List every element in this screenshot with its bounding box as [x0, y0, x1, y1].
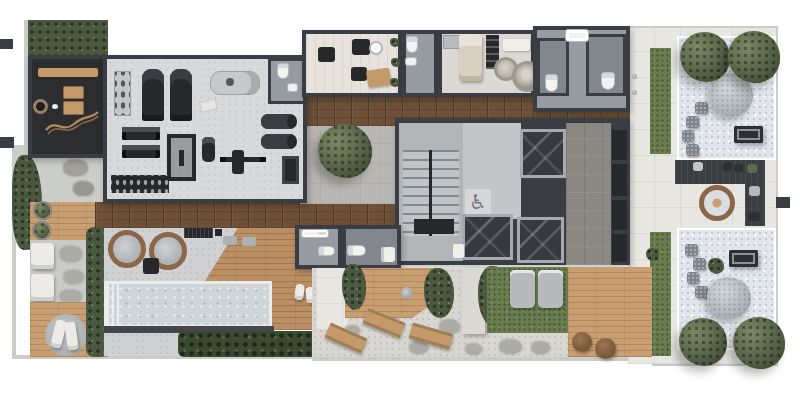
zen-tree [680, 32, 730, 82]
stepping-stone [687, 272, 699, 284]
stepping-stone [693, 258, 706, 270]
shrub [708, 258, 724, 274]
pool-steps [107, 284, 121, 325]
core-hallway [566, 123, 611, 265]
deck-mat [223, 236, 237, 245]
massage-table [459, 34, 482, 81]
potted-shrub [33, 201, 52, 220]
spa-cabinet [443, 35, 460, 49]
smith-rack [282, 156, 299, 184]
toilet [318, 246, 335, 256]
elliptical-seat [226, 78, 234, 86]
accessible-glyph: ♿ [469, 190, 487, 214]
toilet [601, 72, 615, 90]
stepping-stone [686, 144, 699, 156]
elevator-2 [462, 214, 513, 260]
shower-seat [381, 247, 395, 262]
deck-side-table [401, 287, 413, 299]
lobby-bench [453, 244, 464, 258]
weight-bench [232, 150, 244, 174]
toilet [347, 245, 366, 256]
right-gate-marker [774, 197, 790, 208]
lawn-strip-upper [650, 48, 671, 154]
toilet [277, 63, 289, 79]
accessible-icon: ♿ [465, 189, 491, 215]
zen-boulder-lower [707, 277, 751, 319]
sun-lounger-white [31, 274, 54, 301]
stepping-stone [682, 130, 694, 142]
double-sink-counter [301, 229, 329, 238]
bench-cushion [734, 164, 743, 172]
potted-plant [390, 38, 399, 47]
rowing-machine [261, 134, 297, 149]
left-wall-stub-2 [0, 137, 14, 148]
zen-tree [679, 318, 727, 366]
sun-lounger-white [31, 243, 54, 269]
barbell-rack [122, 145, 160, 158]
client-chair [351, 67, 367, 81]
driftwood-sculpture [44, 108, 100, 136]
flagstone [58, 288, 82, 303]
planting-cluster [342, 264, 366, 310]
terrace-tree [318, 124, 372, 178]
zen-bench-upper [734, 126, 763, 143]
treadmill [170, 69, 192, 121]
service-shaft [612, 130, 627, 160]
flagstone [72, 180, 94, 196]
bench-cushion [693, 162, 703, 171]
fire-pit [699, 185, 735, 221]
flagstone [62, 158, 88, 176]
toilet [545, 74, 558, 92]
stepping-stone [685, 244, 698, 256]
bench-cushion [747, 164, 757, 173]
flagstone [530, 340, 550, 354]
shrub [646, 248, 659, 261]
potted-plant [391, 58, 400, 67]
spa-tub-1 [108, 230, 146, 268]
salon-seat [318, 47, 335, 62]
yoga-platform [63, 86, 84, 99]
spa-bench [503, 39, 530, 51]
treadmill [142, 69, 164, 121]
bench-cushion [748, 212, 760, 221]
zen-tree [733, 317, 785, 369]
wood-bench [38, 68, 98, 77]
storage-shelf [114, 71, 131, 116]
potted-plant [390, 78, 399, 87]
flagstone [464, 342, 482, 355]
hedge-garden-top [28, 20, 108, 58]
barbell-rack [122, 127, 160, 140]
path-light-1 [632, 74, 637, 79]
hair-wash-basin [369, 41, 383, 55]
bench-cushion [723, 162, 732, 171]
round-pouf [572, 332, 592, 352]
service-shaft [612, 164, 627, 196]
dumbbell-rack [111, 175, 169, 193]
stepping-stone [686, 116, 699, 128]
deck-mat [242, 237, 256, 246]
elliptical-machine [210, 71, 260, 95]
bench-cushion [749, 186, 760, 196]
garden-lounger [510, 270, 535, 308]
elevator-1 [520, 129, 566, 178]
speaker-box [215, 229, 222, 236]
barbell [220, 157, 266, 162]
path-light-2 [632, 90, 637, 95]
rowing-machine [261, 114, 297, 129]
zen-bench-lower [729, 250, 758, 267]
lap-pool [104, 281, 272, 328]
manicure-table [366, 67, 391, 87]
side-table-dark [143, 258, 159, 274]
toilet [406, 36, 418, 53]
floor-plan-render: ♿ [0, 0, 800, 400]
stepping-stone [695, 102, 708, 114]
garden-lounger [538, 270, 563, 308]
flagstone [62, 268, 84, 284]
styling-chair [352, 39, 370, 55]
service-shaft [612, 200, 627, 230]
washbasin [287, 83, 298, 92]
cable-seat [179, 150, 184, 166]
left-wall-stub-1 [0, 39, 13, 49]
elevator-3 [517, 217, 564, 263]
towel-console [184, 228, 213, 238]
potted-shrub [32, 221, 51, 240]
round-pouf [595, 338, 616, 359]
stair-lower-flight [414, 219, 454, 234]
washbasin [405, 57, 417, 66]
zen-tree [728, 31, 780, 83]
service-shaft [612, 234, 627, 262]
palm-cluster [424, 268, 454, 318]
sink-counter [565, 29, 589, 42]
plate-tree [202, 137, 215, 162]
flagstone [58, 244, 82, 262]
flagstone [498, 338, 522, 354]
